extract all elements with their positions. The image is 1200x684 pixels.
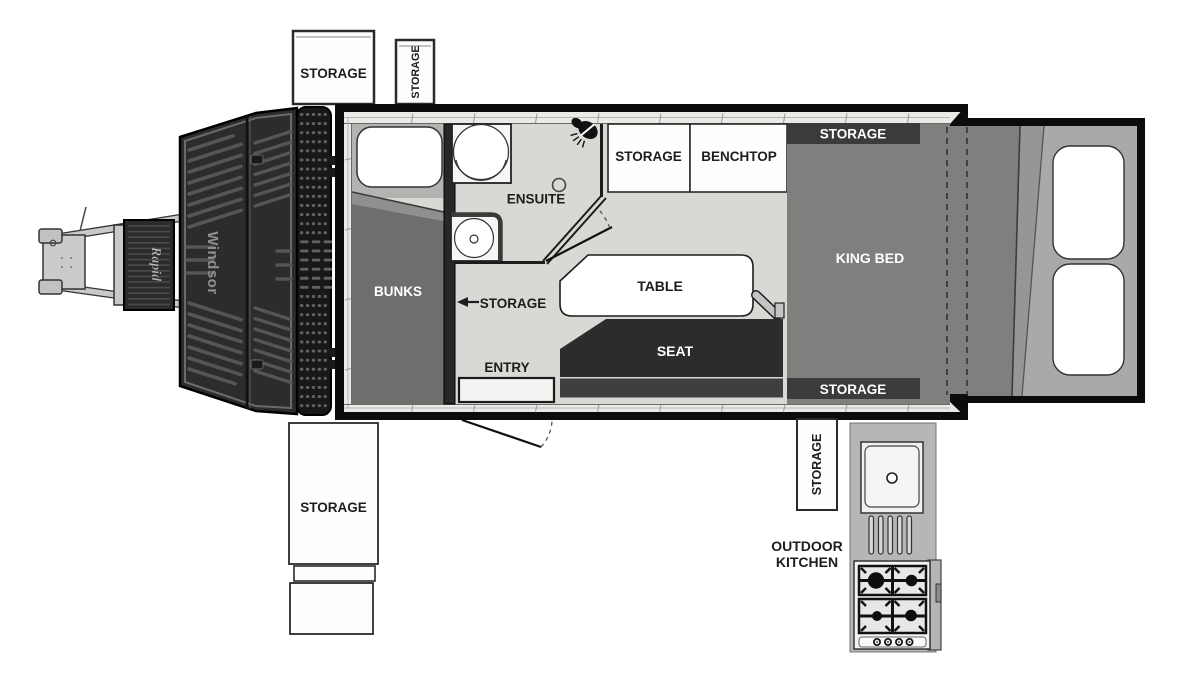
svg-text:ENTRY: ENTRY <box>484 360 529 375</box>
svg-text:STORAGE: STORAGE <box>300 500 367 515</box>
svg-text:ENSUITE: ENSUITE <box>507 192 566 207</box>
svg-text:STORAGE: STORAGE <box>410 45 422 98</box>
svg-text:STORAGE: STORAGE <box>480 296 547 311</box>
svg-text:Rapid: Rapid <box>148 246 163 282</box>
svg-text:STORAGE: STORAGE <box>820 382 887 397</box>
svg-text:STORAGE: STORAGE <box>300 66 367 81</box>
svg-text:Windsor: Windsor <box>204 231 221 294</box>
svg-text:BUNKS: BUNKS <box>374 284 422 299</box>
svg-text:OUTDOOR: OUTDOOR <box>771 538 843 554</box>
svg-text:TABLE: TABLE <box>637 278 683 294</box>
svg-text:KITCHEN: KITCHEN <box>776 554 838 570</box>
svg-text:STORAGE: STORAGE <box>615 149 682 164</box>
svg-text:SEAT: SEAT <box>657 343 694 359</box>
svg-text:KING BED: KING BED <box>836 250 904 266</box>
svg-text:STORAGE: STORAGE <box>810 434 824 496</box>
svg-text:STORAGE: STORAGE <box>820 127 887 142</box>
svg-text:BENCHTOP: BENCHTOP <box>701 149 777 164</box>
